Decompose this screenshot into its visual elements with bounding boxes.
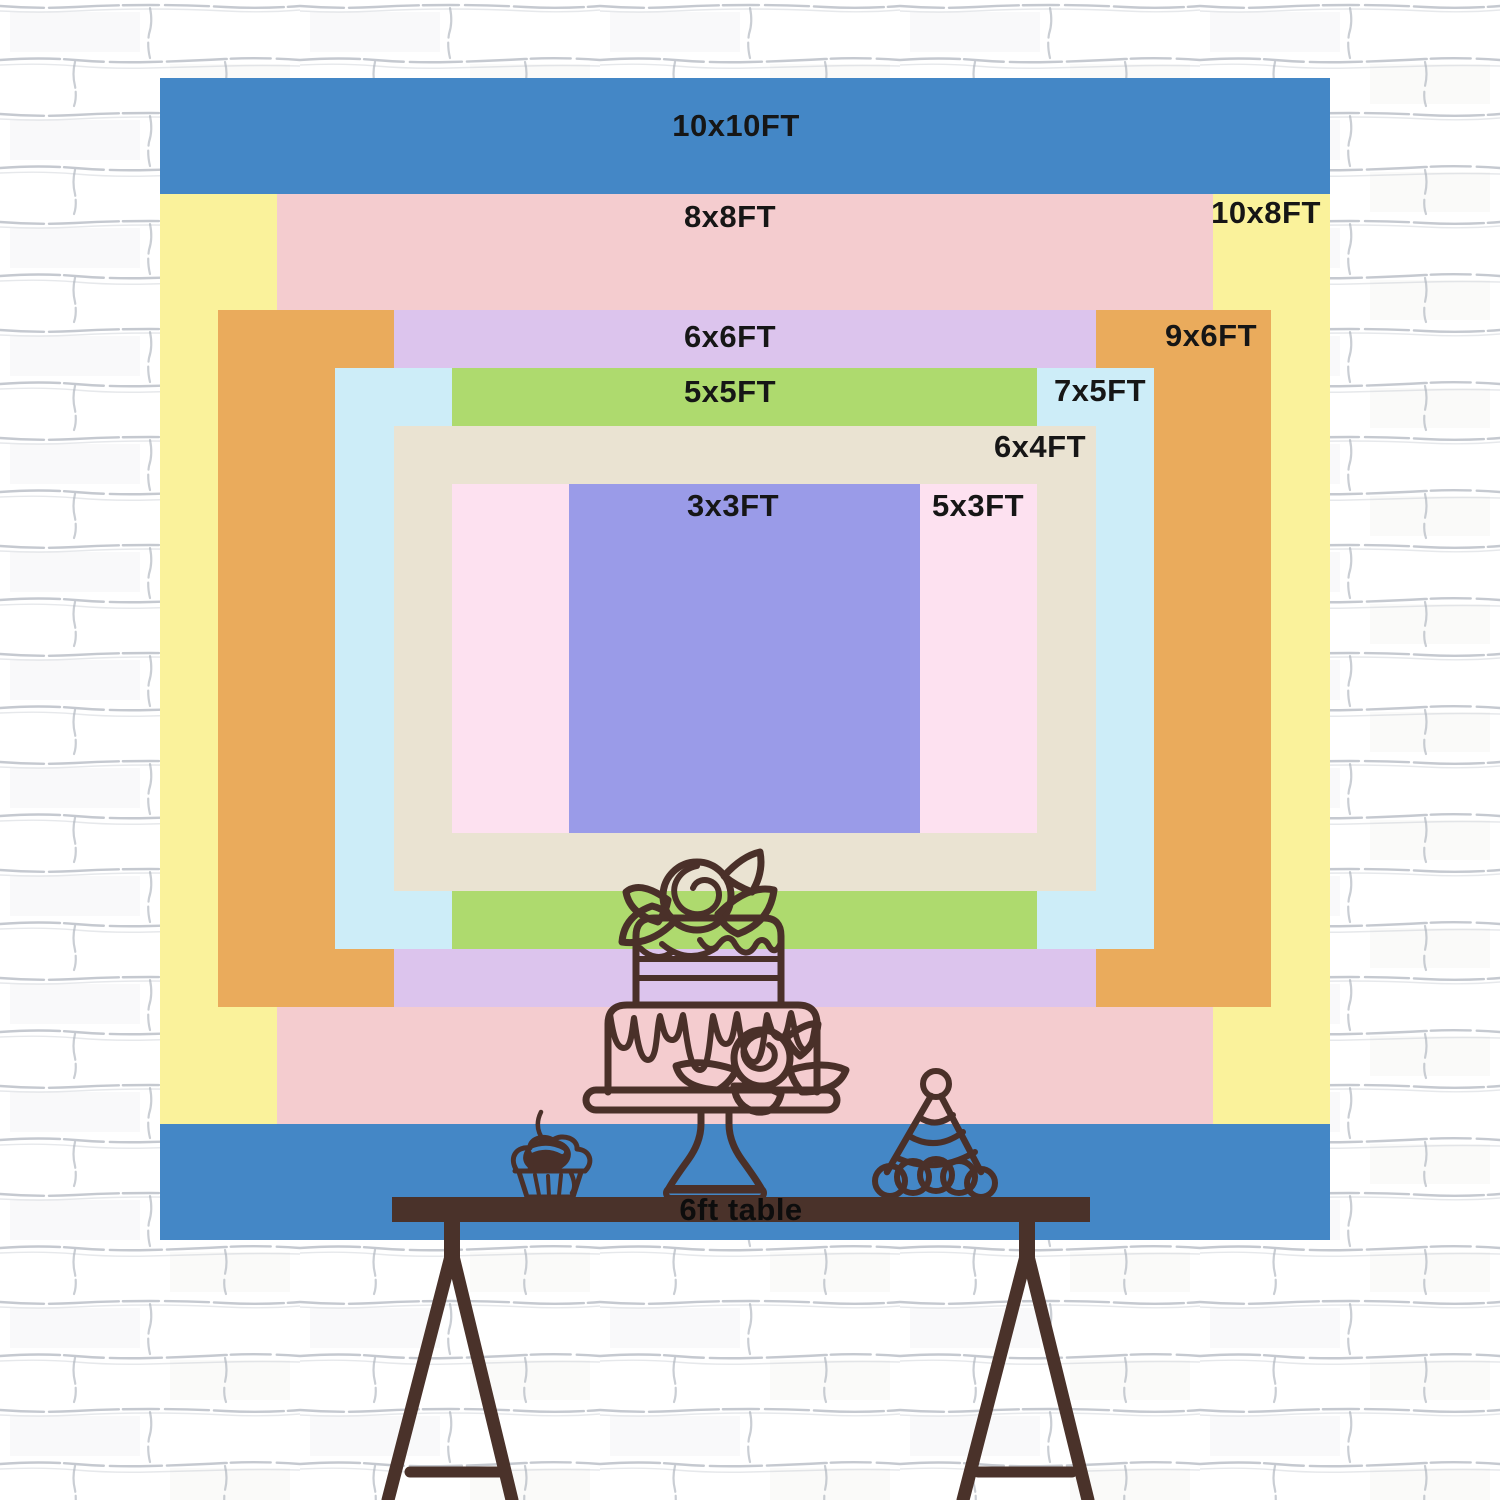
trestle-table [388,1197,1090,1500]
two-tier-cake-icon [608,852,846,1112]
table-size-label: 6ft table [679,1192,802,1228]
cake-stand-icon [586,1090,837,1198]
party-hat-icon [875,1071,995,1197]
backdrop-size-chart: 10x10FT 10x8FT 8x8FT 9x6FT 6x6FT 7x5FT 5… [0,0,1500,1500]
dessert-table-illustration [0,0,1500,1500]
cupcake-icon [513,1112,589,1197]
